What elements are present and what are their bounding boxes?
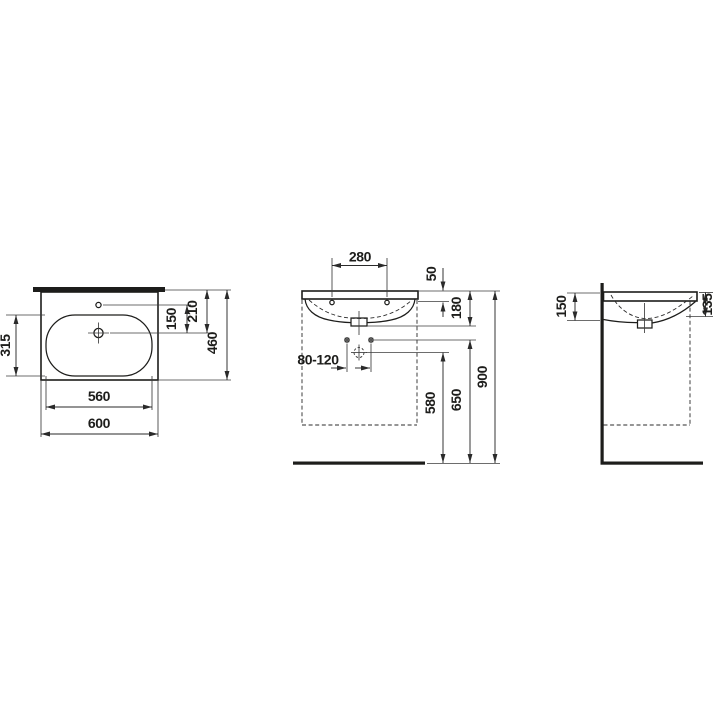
supply-hole-right (369, 338, 373, 342)
wall-line (601, 283, 604, 463)
dim-label-supply-spacing: 80-120 (297, 352, 339, 368)
dim-label-rear-to-tap: 210 (184, 300, 200, 323)
dim-label-body-height: 180 (448, 296, 464, 319)
fixing-hole-left (330, 300, 334, 304)
dim-label-supply-height: 650 (448, 388, 464, 411)
dim-label-overall-width: 600 (88, 415, 111, 431)
fixing-hole-right (385, 300, 389, 304)
waste-outlet-crosshair (351, 345, 367, 361)
washbasin-dimension-drawing: 315 150 210 460 560 600 (0, 0, 720, 720)
technical-drawing-page: 315 150 210 460 560 600 (0, 0, 720, 720)
rim-side-outline (604, 292, 698, 301)
dim-label-overall-depth: 460 (204, 331, 220, 354)
top-view: 315 150 210 460 560 600 (0, 287, 231, 437)
apron-right (367, 299, 415, 323)
bowl-interior-dashed (309, 300, 412, 319)
top-view-outline (33, 287, 165, 380)
front-view: 280 50 180 80-120 580 650 900 (293, 249, 500, 465)
front-view-outline (293, 291, 425, 465)
underside-front (652, 302, 696, 324)
front-view-dimensions: 280 50 180 80-120 580 650 900 (297, 249, 500, 464)
dim-label-basin-depth: 315 (0, 334, 13, 357)
underside-rear (604, 320, 638, 323)
floor-line-front (293, 462, 425, 465)
supply-hole-left (345, 338, 349, 342)
dim-label-rim-to-fixing: 50 (423, 266, 439, 281)
side-view-outline (601, 283, 704, 465)
dim-label-rim-height: 900 (474, 365, 490, 388)
basin-bowl-outline (46, 315, 152, 376)
overflow-hole (96, 302, 101, 307)
dim-label-basin-width: 560 (88, 388, 111, 404)
rim-front-outline (302, 291, 418, 299)
dim-label-waste-height: 580 (422, 391, 438, 414)
dim-label-tap-hole-spacing: 280 (349, 249, 372, 265)
dim-label-height-at-front: 135 (699, 293, 715, 316)
side-view: 150 135 (553, 283, 715, 465)
dim-label-overflow-to-tap: 150 (163, 307, 179, 330)
floor-line-side (601, 462, 704, 465)
dim-label-height-at-wall: 150 (553, 295, 569, 318)
